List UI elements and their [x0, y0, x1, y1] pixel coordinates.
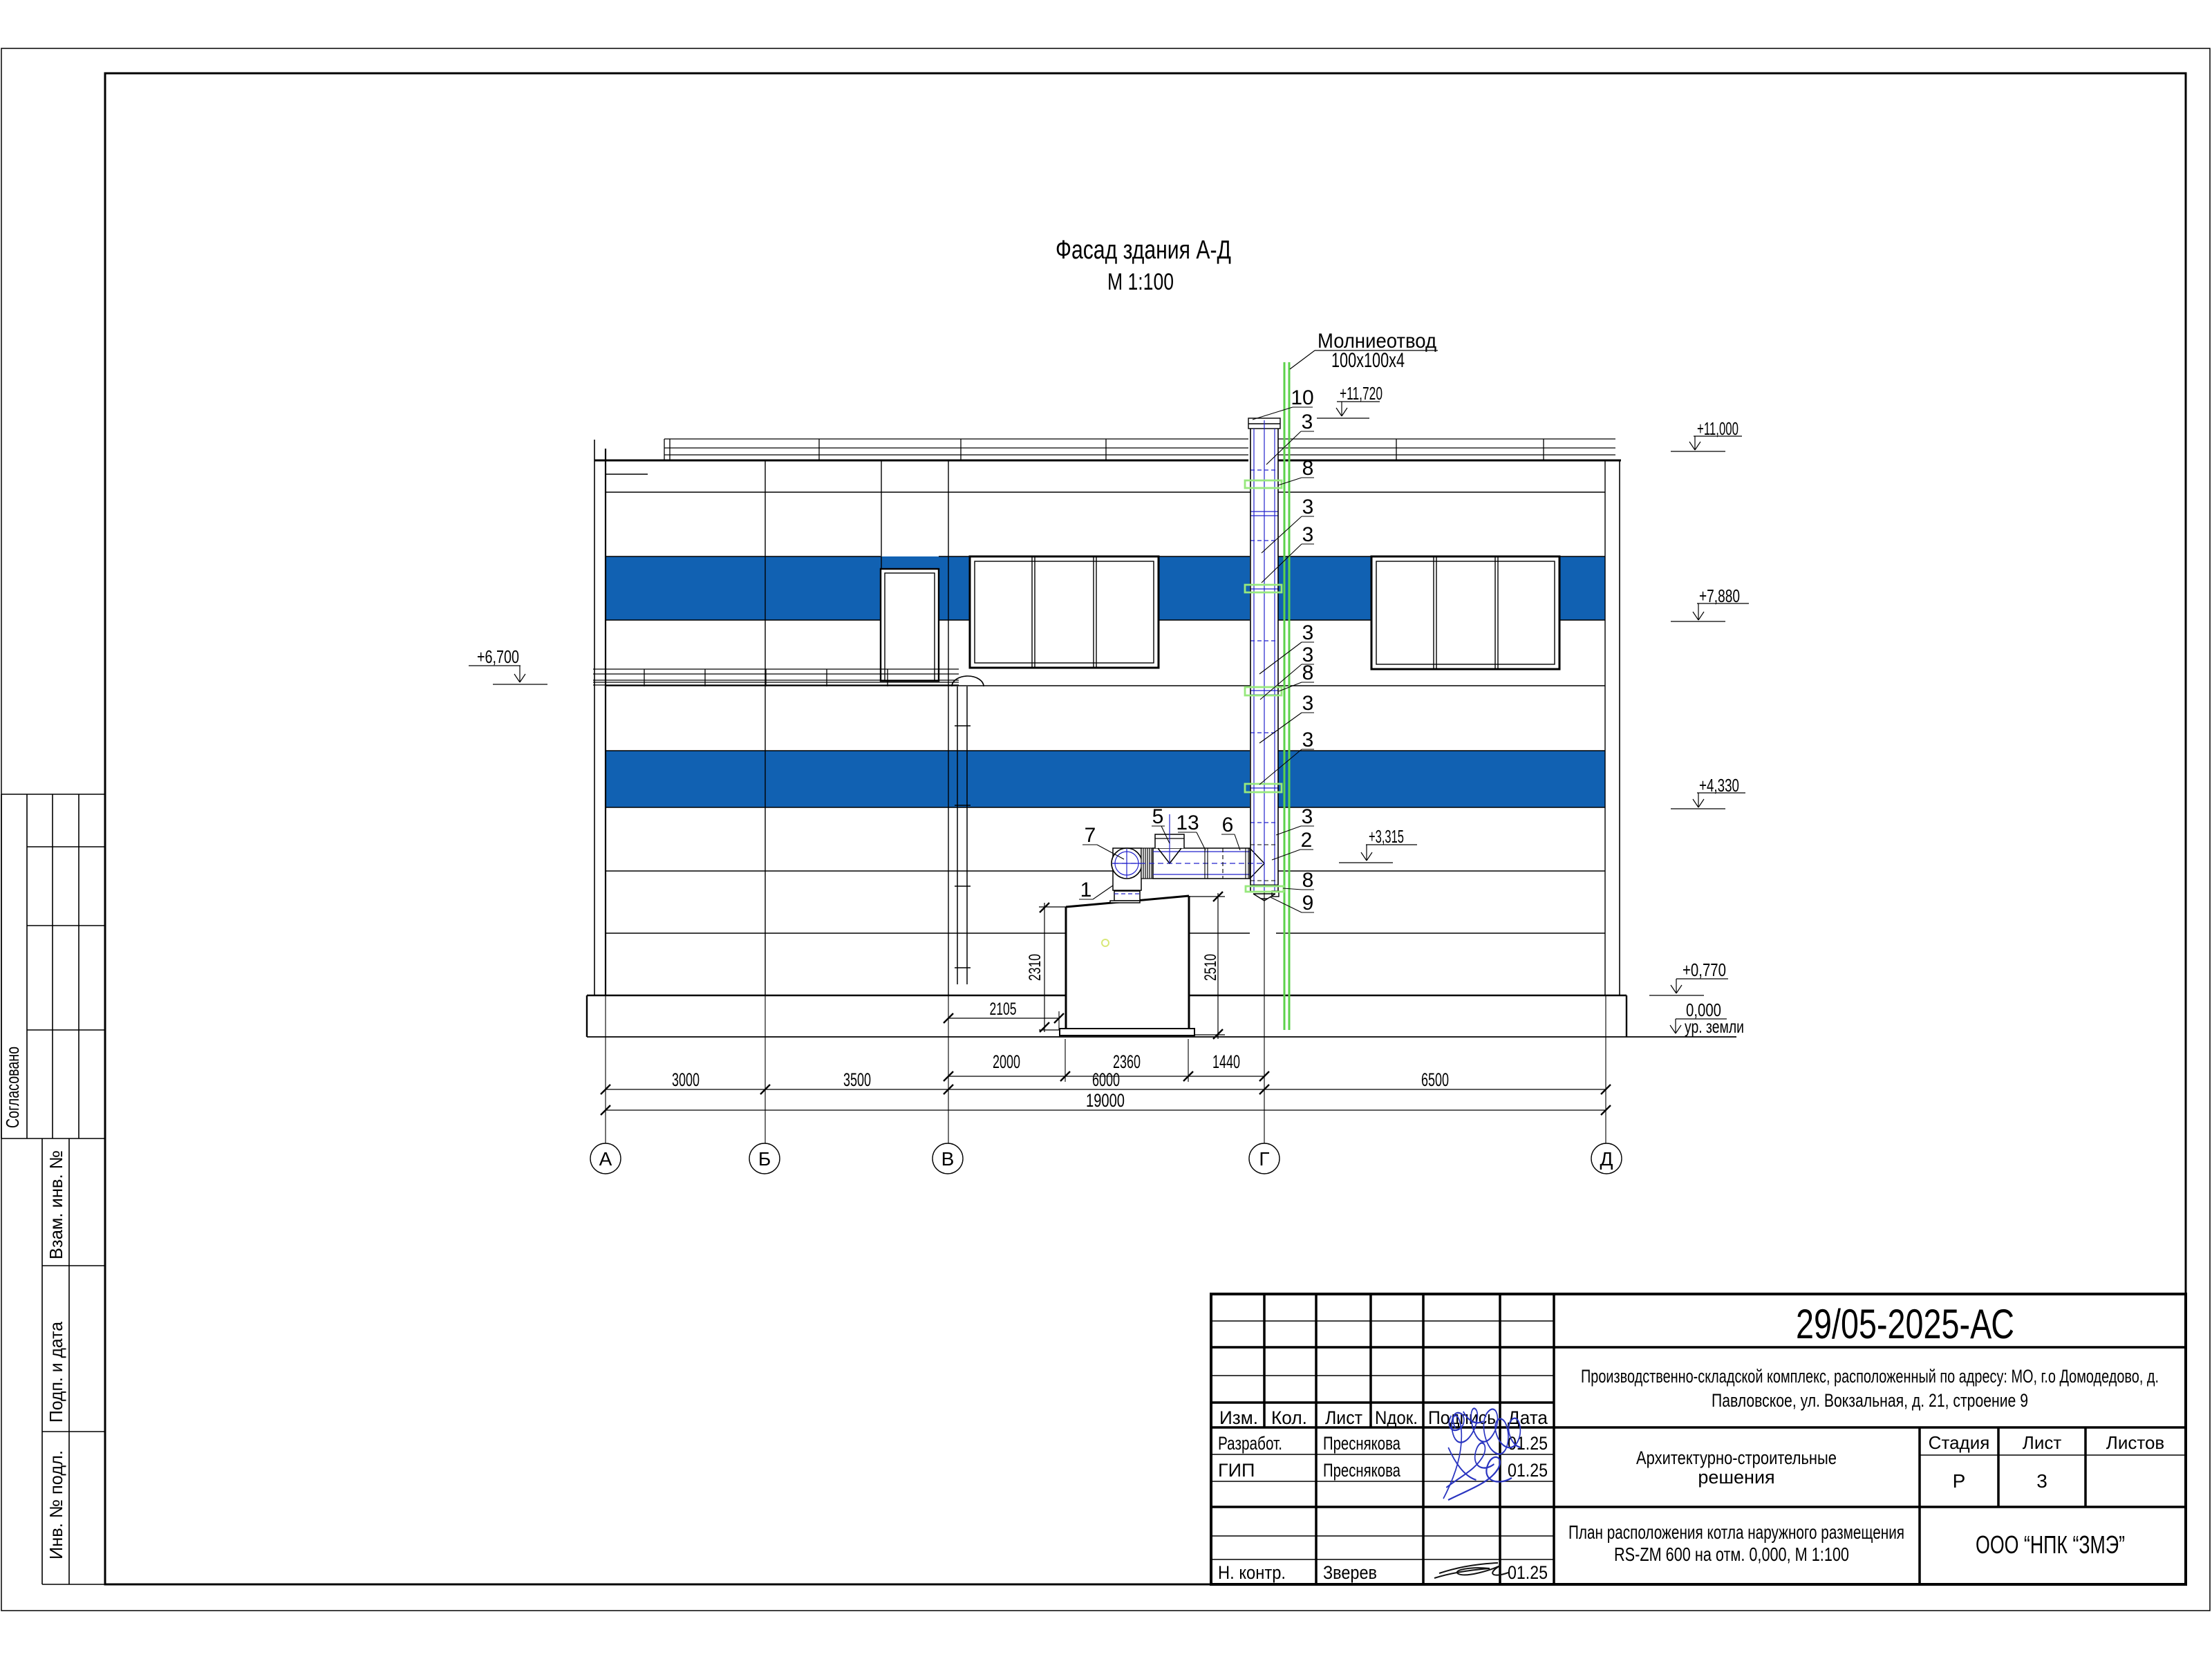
svg-text:Стадия: Стадия	[1929, 1432, 1990, 1453]
svg-text:3: 3	[1302, 805, 1313, 828]
svg-text:01.25: 01.25	[1508, 1460, 1548, 1481]
svg-text:9: 9	[1302, 892, 1314, 915]
svg-text:Nдок.: Nдок.	[1375, 1407, 1418, 1428]
svg-text:Подпись: Подпись	[1428, 1407, 1496, 1428]
svg-text:Согласовано: Согласовано	[2, 1047, 23, 1128]
svg-text:8: 8	[1302, 869, 1314, 892]
svg-text:Преснякова: Преснякова	[1323, 1433, 1401, 1454]
svg-text:+4,330: +4,330	[1699, 775, 1739, 796]
svg-text:1: 1	[1080, 879, 1092, 901]
svg-text:Н. контр.: Н. контр.	[1218, 1562, 1286, 1583]
svg-text:Г: Г	[1259, 1148, 1269, 1170]
svg-text:В: В	[941, 1148, 955, 1170]
svg-text:Павловское, ул. Вокзальная, д.: Павловское, ул. Вокзальная, д. 21, строе…	[1712, 1390, 2028, 1411]
svg-text:Листов: Листов	[2106, 1432, 2164, 1453]
svg-text:Зверев: Зверев	[1323, 1562, 1377, 1583]
svg-text:5: 5	[1152, 805, 1164, 828]
svg-text:А: А	[599, 1148, 612, 1170]
svg-text:3: 3	[2036, 1470, 2047, 1492]
svg-text:+3,315: +3,315	[1369, 826, 1404, 847]
svg-text:3000: 3000	[672, 1069, 700, 1090]
svg-text:М 1:100: М 1:100	[1107, 269, 1174, 295]
svg-text:Лист: Лист	[2023, 1432, 2062, 1453]
svg-text:ООО “НПК “ЗМЭ”: ООО “НПК “ЗМЭ”	[1976, 1530, 2125, 1559]
svg-text:6: 6	[1222, 814, 1234, 836]
svg-text:3: 3	[1302, 496, 1314, 518]
svg-text:2105: 2105	[990, 1000, 1017, 1019]
svg-text:План расположения котла наружн: План расположения котла наружного размещ…	[1568, 1521, 1904, 1543]
svg-text:6500: 6500	[1421, 1069, 1449, 1090]
svg-text:Разработ.: Разработ.	[1218, 1433, 1282, 1454]
svg-text:3: 3	[1302, 411, 1313, 433]
svg-text:+6,700: +6,700	[477, 646, 519, 667]
svg-text:100x100x4: 100x100x4	[1331, 349, 1405, 372]
svg-text:+11,000: +11,000	[1697, 418, 1738, 439]
svg-text:3500: 3500	[843, 1069, 871, 1090]
svg-text:3: 3	[1302, 523, 1314, 546]
svg-text:Б: Б	[758, 1148, 771, 1170]
svg-text:13: 13	[1176, 812, 1199, 834]
svg-text:29/05-2025-АС: 29/05-2025-АС	[1796, 1301, 2014, 1347]
svg-text:Изм.: Изм.	[1219, 1407, 1258, 1428]
svg-text:19000: 19000	[1086, 1090, 1125, 1111]
svg-text:1440: 1440	[1212, 1051, 1240, 1072]
svg-text:Лист: Лист	[1325, 1407, 1362, 1428]
svg-text:+11,720: +11,720	[1340, 383, 1382, 404]
svg-text:решения: решения	[1698, 1467, 1774, 1488]
svg-text:2310: 2310	[1026, 954, 1044, 981]
svg-text:2510: 2510	[1201, 954, 1220, 981]
svg-text:7: 7	[1085, 824, 1096, 847]
svg-text:Производственно-складской комп: Производственно-складской комплекс, расп…	[1581, 1366, 2159, 1387]
svg-text:10: 10	[1291, 386, 1313, 409]
svg-text:Взам. инв. №: Взам. инв. №	[46, 1150, 66, 1259]
svg-text:Кол.: Кол.	[1271, 1407, 1307, 1428]
svg-text:3: 3	[1302, 692, 1314, 715]
svg-text:Д: Д	[1600, 1148, 1613, 1170]
svg-text:+7,880: +7,880	[1699, 585, 1740, 606]
svg-text:6000: 6000	[1092, 1069, 1120, 1090]
svg-text:ур. земли: ур. земли	[1685, 1016, 1744, 1037]
svg-text:Инв. № подл.: Инв. № подл.	[46, 1450, 66, 1559]
svg-text:8: 8	[1302, 457, 1314, 480]
svg-text:3: 3	[1302, 729, 1314, 751]
svg-text:Р: Р	[1953, 1470, 1966, 1492]
svg-text:Преснякова: Преснякова	[1323, 1460, 1401, 1481]
svg-text:01.25: 01.25	[1508, 1562, 1548, 1583]
svg-text:ГИП: ГИП	[1218, 1460, 1255, 1481]
svg-text:RS-ZM 600 на отм. 0,000, М 1:: RS-ZM 600 на отм. 0,000, М 1:100	[1614, 1544, 1849, 1565]
svg-text:+0,770: +0,770	[1683, 959, 1726, 980]
svg-text:8: 8	[1302, 662, 1314, 684]
svg-text:Фасад здания А-Д: Фасад здания А-Д	[1056, 236, 1231, 265]
svg-text:2: 2	[1301, 829, 1313, 852]
svg-text:Подп. и дата: Подп. и дата	[46, 1321, 66, 1423]
svg-text:2000: 2000	[993, 1051, 1020, 1072]
svg-text:Архитектурно-строительные: Архитектурно-строительные	[1636, 1447, 1837, 1468]
svg-text:3: 3	[1302, 621, 1314, 644]
